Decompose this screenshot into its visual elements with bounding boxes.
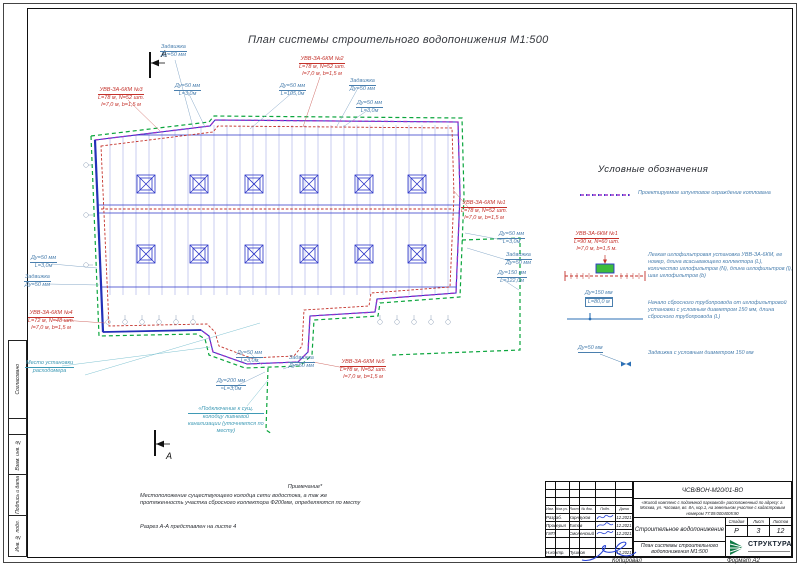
copied-label: Копировал bbox=[612, 558, 642, 564]
annotation-pipe: Ду=50 ммL=3,0м bbox=[30, 255, 57, 270]
annotation-head: УВВ-ЗА-6КМ №4 bbox=[28, 310, 74, 318]
legend-label-head: УВВ-ЗА-6КМ №1 bbox=[574, 231, 619, 239]
col-list: Лист bbox=[569, 505, 579, 513]
annotation-rest: Ду=50 мм bbox=[349, 86, 376, 93]
pit-outline bbox=[95, 120, 460, 364]
notes-block: Примечание* Местоположение существующего… bbox=[140, 484, 470, 531]
structura-logo-icon bbox=[730, 540, 746, 555]
annotation-pipe: Ду=50 ммL=3,0м bbox=[174, 83, 201, 98]
annotation-unit-5: УВВ-ЗА-6КМ №5L=78 м, N=52 шт. l=7,0 м, b… bbox=[340, 359, 386, 381]
legend-label-discharge: Ду=150 мм L=80,0 м bbox=[585, 290, 613, 307]
grid-line bbox=[545, 497, 633, 498]
col-izm: Изм. bbox=[545, 505, 555, 513]
legend-symbol-valve bbox=[596, 352, 646, 368]
annotation-rest: расходомера bbox=[25, 368, 74, 375]
legend-desc: Задвижка с условным диаметром 150 мм bbox=[648, 350, 793, 357]
legend-desc: Легкая иглофильтровая установка УВВ-ЗА-6… bbox=[648, 252, 793, 280]
annotation-rest: L=3,0м bbox=[356, 108, 383, 115]
annotation-head: Задвижка bbox=[288, 355, 315, 363]
annotation-flowmeter: Место установкирасходомера bbox=[25, 360, 74, 375]
row-date: 12.2021 bbox=[615, 529, 633, 537]
notes-body: Местоположение существующего колодца сет… bbox=[140, 493, 470, 508]
notes-section-ref: Разрез А-А представлен на листе 4 bbox=[140, 524, 470, 532]
legend-heading: Условные обозначения bbox=[598, 164, 708, 175]
annotation-head: Ду=50 мм bbox=[498, 231, 525, 239]
annotation-sewer-connection: «Подключение к сущ.колодцу ливневой кана… bbox=[188, 406, 264, 435]
col-data: Дата bbox=[615, 505, 633, 513]
annotation-rest: Ду=50 мм bbox=[288, 363, 315, 370]
annotation-head: Ду=50 мм bbox=[356, 100, 383, 108]
legend-symbol-wellpoint-unit bbox=[563, 255, 647, 281]
doc-title: Строительное водопонижение bbox=[633, 517, 726, 542]
annotation-rest: L=72 м, N=48 шт. l=7,0 м, b=1,5 м bbox=[28, 318, 74, 332]
legend-label-body: L=80,0 м bbox=[585, 298, 613, 307]
annotation-rest: L=3,0м bbox=[498, 239, 525, 246]
side-cell-inv: Инв. № подл. bbox=[9, 516, 26, 556]
structura-logo-text: СТРУКТУРА bbox=[748, 541, 792, 548]
annotation-rest: L=78 м, N=52 шт. l=7,0 м, b=1,5 м bbox=[299, 64, 345, 78]
notes-heading: Примечание* bbox=[140, 484, 470, 492]
annotation-rest: L=78 м, N=52 шт. l=7,0 м, b=1,5 м bbox=[98, 95, 144, 109]
section-marker-bottom: А bbox=[155, 430, 172, 461]
annotation-head: Ду=50 мм bbox=[279, 83, 306, 91]
annotation-pipe: Ду=50 ммL=3,0м bbox=[356, 100, 383, 115]
annotation-head: Место установки bbox=[25, 360, 74, 368]
section-letter: А bbox=[165, 451, 172, 461]
side-label: Согласовано bbox=[15, 364, 21, 395]
annotation-rest: колодцу ливневой канализации (уточняется… bbox=[188, 414, 264, 435]
annotation-unit-1: УВВ-ЗА-6КМ №1L=78 м, N=52 шт. l=7,0 м, b… bbox=[461, 200, 507, 222]
legend-label-unit: УВВ-ЗА-6КМ №1 L=90 м, N=60 шт. l=7,0 м, … bbox=[574, 231, 619, 253]
legend-symbol-sheet-pile bbox=[578, 191, 632, 199]
object-description: «Жилой комплекс с подземной парковкой» р… bbox=[633, 498, 792, 518]
annotation-rest: Ду=50 мм bbox=[160, 52, 187, 59]
legend-label-body: L=90 м, N=60 шт. l=7,0 м, b=1,5 м. bbox=[574, 239, 619, 253]
annotation-unit-2: УВВ-ЗА-6КМ №2L=78 м, N=52 шт. l=7,0 м, b… bbox=[299, 56, 345, 78]
annotation-rest: L=105,0м bbox=[279, 91, 306, 98]
annotation-rest: Ду=50 мм bbox=[24, 282, 51, 289]
row-role: Н.контр. bbox=[546, 548, 569, 557]
legend-symbol-discharge-pipe bbox=[565, 310, 645, 322]
annotation-pipe: Ду=50 ммL=3,0м bbox=[236, 350, 263, 365]
annotation-rest: L=122,0м bbox=[497, 278, 527, 285]
legend-desc: Проектируемое шпунтовое ограждение котло… bbox=[638, 190, 796, 197]
legend-label-head: Ду=150 мм bbox=[585, 290, 613, 298]
annotation-rest: L=78 м, N=52 шт. l=7,0 м, b=1,5 м bbox=[340, 367, 386, 381]
annotation-rest: Ду=50 мм bbox=[505, 260, 532, 267]
annotation-head: УВВ-ЗА-6КМ №2 bbox=[299, 56, 345, 64]
signature bbox=[596, 521, 615, 529]
side-label: Взам. инв. № bbox=[15, 439, 21, 471]
annotation-rest: ≈L=3,0м bbox=[216, 386, 246, 393]
col-koluch: Кол.уч. bbox=[555, 505, 569, 513]
annotation-valve: ЗадвижкаДу=50 мм bbox=[288, 355, 315, 370]
side-label: Подпись и дата bbox=[15, 476, 21, 514]
annotation-discharge-pipe: Ду=150 ммL=122,0м bbox=[497, 270, 527, 285]
sheet-title: План системы строительного водопонижения… bbox=[633, 541, 726, 557]
annotation-unit-3: УВВ-ЗА-6КМ №3L=78 м, N=52 шт. l=7,0 м, b… bbox=[98, 87, 144, 109]
format-label: Формат А2 bbox=[727, 558, 760, 564]
annotation-valve: ЗадвижкаДу=50 мм bbox=[349, 78, 376, 93]
annotation-head: Ду=50 мм bbox=[236, 350, 263, 358]
doc-code: ЧСВ/ВОН-М20/01-ВО bbox=[633, 481, 792, 499]
annotation-pipe: Ду=50 ммL=3,0м bbox=[498, 231, 525, 246]
annotation-rest: L=3,0м bbox=[236, 358, 263, 365]
col-podp: Подп. bbox=[595, 505, 615, 513]
annotation-unit-4: УВВ-ЗА-6КМ №4L=72 м, N=48 шт. l=7,0 м, b… bbox=[28, 310, 74, 332]
logo-cell: СТРУКТУРА bbox=[725, 536, 792, 557]
annotation-head: «Подключение к сущ. bbox=[188, 406, 264, 414]
annotation-head: Ду=50 мм bbox=[30, 255, 57, 263]
row-role: Проверил bbox=[546, 521, 569, 529]
annotation-rest: L=3,0м bbox=[30, 263, 57, 270]
signature bbox=[596, 513, 615, 521]
annotation-head: УВВ-ЗА-6КМ №3 bbox=[98, 87, 144, 95]
annotation-head: УВВ-ЗА-6КМ №5 bbox=[340, 359, 386, 367]
row-role: ГИП bbox=[546, 529, 569, 537]
annotation-valve: ЗадвижкаДу=50 мм bbox=[24, 274, 51, 289]
annotation-head: Задвижка bbox=[505, 252, 532, 260]
annotation-rest: L=3,0м bbox=[174, 91, 201, 98]
annotation-head: Задвижка bbox=[24, 274, 51, 282]
row-role: Разраб. bbox=[546, 513, 569, 521]
row-name: Смоленский bbox=[569, 529, 595, 537]
annotation-head: Ду=150 мм bbox=[497, 270, 527, 278]
annotation-valve: ЗадвижкаДу=50 мм bbox=[160, 44, 187, 59]
row-name: Титов bbox=[569, 521, 595, 529]
annotation-pipe: Ду=50 ммL=105,0м bbox=[279, 83, 306, 98]
logo-tagline-rule bbox=[748, 551, 790, 552]
side-label: Инв. № подл. bbox=[15, 520, 21, 552]
annotation-outlet-pipe: Ду=200 мм≈L=3,0м bbox=[216, 378, 246, 393]
annotation-head: УВВ-ЗА-6КМ №1 bbox=[461, 200, 507, 208]
grid-line bbox=[545, 489, 633, 490]
annotation-valve: ЗадвижкаДу=50 мм bbox=[505, 252, 532, 267]
annotation-rest: L=78 м, N=52 шт. l=7,0 м, b=1,5 м bbox=[461, 208, 507, 222]
annotation-head: Задвижка bbox=[349, 78, 376, 86]
side-cell-vzam: Взам. инв. № bbox=[9, 435, 26, 475]
side-cell-soglasovano: Согласовано bbox=[9, 341, 26, 419]
col-dok: № док. bbox=[579, 505, 595, 513]
side-cell-empty bbox=[9, 419, 26, 435]
annotation-head: Ду=50 мм bbox=[174, 83, 201, 91]
discharge-outlet bbox=[266, 368, 272, 434]
annotation-head: Задвижка bbox=[160, 44, 187, 52]
annotation-head: Ду=200 мм bbox=[216, 378, 246, 386]
row-date: 12.2021 bbox=[615, 513, 633, 521]
row-date: 12.2021 bbox=[615, 521, 633, 529]
side-cell-podpis: Подпись и дата bbox=[9, 475, 26, 516]
signature bbox=[596, 529, 615, 537]
legend-desc: Начало сбросного трубопровода от иглофил… bbox=[648, 300, 793, 321]
drawing-sheet: Согласовано Взам. инв. № Подпись и дата … bbox=[0, 0, 800, 566]
row-name: Карнаухов bbox=[569, 513, 595, 521]
